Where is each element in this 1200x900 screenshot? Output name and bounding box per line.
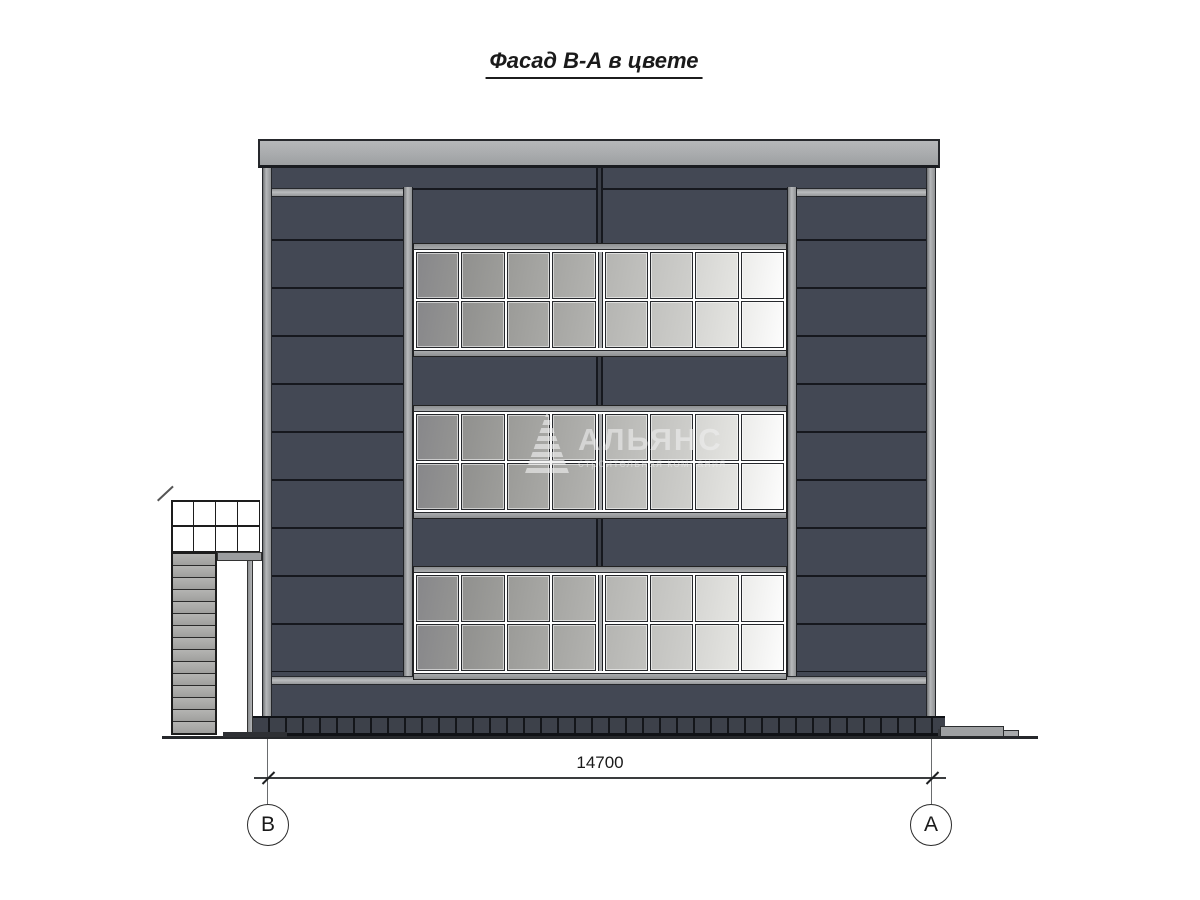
window-pane [416, 463, 459, 510]
glazing-grid [414, 412, 786, 512]
band-center-divider [598, 252, 603, 348]
window-pane [461, 301, 504, 348]
window-pane [552, 414, 595, 461]
band-bottom-trim [414, 673, 786, 679]
window-pane [650, 414, 693, 461]
axis-letter-a: А [924, 813, 938, 837]
stair-louver-strip [173, 614, 215, 626]
window-pane [695, 414, 738, 461]
window-pane [461, 624, 504, 671]
window-pane [605, 414, 648, 461]
drawing-title: Фасад В-А в цвете [486, 48, 703, 79]
window-pane [461, 252, 504, 299]
annex-canopy-line [157, 486, 173, 501]
right-column-rail [797, 188, 926, 197]
stair-louver-strip [173, 554, 215, 566]
dimension-line [254, 777, 946, 779]
window-pane [741, 624, 784, 671]
window-pane [605, 252, 648, 299]
window-pane [416, 252, 459, 299]
stair-louver-strip [173, 674, 215, 686]
window-pane [416, 575, 459, 622]
axis-extension-line-left [267, 739, 268, 804]
stair-louver-strip [173, 722, 215, 733]
stair-louver-strip [173, 686, 215, 698]
window-pane [416, 301, 459, 348]
window-pane [695, 252, 738, 299]
stair-louver-strip [173, 662, 215, 674]
window-pane [650, 301, 693, 348]
parapet-cap [258, 139, 940, 168]
window-pane [605, 301, 648, 348]
stair-louver-strip [173, 626, 215, 638]
annex-stair-louvers [171, 552, 217, 735]
window-pane [507, 463, 550, 510]
window-pane [741, 301, 784, 348]
window-pane [507, 575, 550, 622]
stair-louver-strip [173, 590, 215, 602]
annex-door-frame [247, 560, 253, 735]
band-center-divider [598, 575, 603, 671]
window-pane [741, 575, 784, 622]
window-pane [416, 414, 459, 461]
window-pane [741, 252, 784, 299]
window-band-1 [413, 243, 787, 357]
window-pane [507, 252, 550, 299]
axis-marker-b: В [247, 804, 289, 846]
window-band-2 [413, 405, 787, 519]
axis-marker-a: А [910, 804, 952, 846]
window-pane [416, 624, 459, 671]
window-pane [507, 624, 550, 671]
stair-louver-strip [173, 566, 215, 578]
window-pane [461, 575, 504, 622]
window-pane [507, 414, 550, 461]
annex-threshold [223, 732, 287, 737]
facade-left-edge-trim [262, 168, 272, 716]
dimension-value: 14700 [576, 753, 623, 773]
window-pane [461, 463, 504, 510]
window-pane [461, 414, 504, 461]
window-pane [695, 624, 738, 671]
axis-extension-line-right [931, 739, 932, 804]
window-pane [507, 301, 550, 348]
window-pane [741, 414, 784, 461]
building-facade [262, 168, 936, 716]
glazing-grid [414, 250, 786, 350]
annex-grid-cell [238, 527, 258, 551]
annex-grid-cell [173, 502, 193, 526]
band-bottom-trim [414, 350, 786, 356]
window-band-3 [413, 566, 787, 680]
stair-louver-strip [173, 710, 215, 722]
stair-louver-strip [173, 578, 215, 590]
right-column-panel-seams [797, 197, 926, 676]
annex-grid-cell [194, 502, 214, 526]
window-pane [552, 575, 595, 622]
window-pane [695, 575, 738, 622]
band-center-divider [598, 414, 603, 510]
window-pane [552, 624, 595, 671]
axis-letter-b: В [261, 813, 275, 837]
annex-door-header [217, 552, 262, 561]
window-pane [695, 301, 738, 348]
left-column-rail [272, 188, 403, 197]
facade-right-edge-trim [926, 168, 936, 716]
window-pane [605, 624, 648, 671]
ground-line [162, 736, 1038, 739]
annex-grid-cell [173, 527, 193, 551]
window-pane [605, 463, 648, 510]
glazing-grid [414, 573, 786, 673]
right-pilaster [787, 187, 797, 676]
annex-grid-cell [194, 527, 214, 551]
window-pane [741, 463, 784, 510]
window-pane [552, 463, 595, 510]
stair-louver-strip [173, 602, 215, 614]
left-pilaster [403, 187, 413, 676]
window-pane [650, 624, 693, 671]
annex-grid-cell [216, 527, 236, 551]
stair-louver-strip [173, 638, 215, 650]
window-pane [605, 575, 648, 622]
window-pane [552, 252, 595, 299]
plinth-base [253, 716, 945, 736]
window-pane [650, 463, 693, 510]
window-pane [650, 575, 693, 622]
window-pane [650, 252, 693, 299]
stair-louver-strip [173, 650, 215, 662]
stair-louver-strip [173, 698, 215, 710]
window-pane [552, 301, 595, 348]
annex-grid-cell [238, 502, 258, 526]
annex-grid-cell [216, 502, 236, 526]
annex-window-grid [171, 500, 260, 552]
band-bottom-trim [414, 512, 786, 518]
window-pane [695, 463, 738, 510]
left-column-panel-seams [272, 197, 403, 676]
